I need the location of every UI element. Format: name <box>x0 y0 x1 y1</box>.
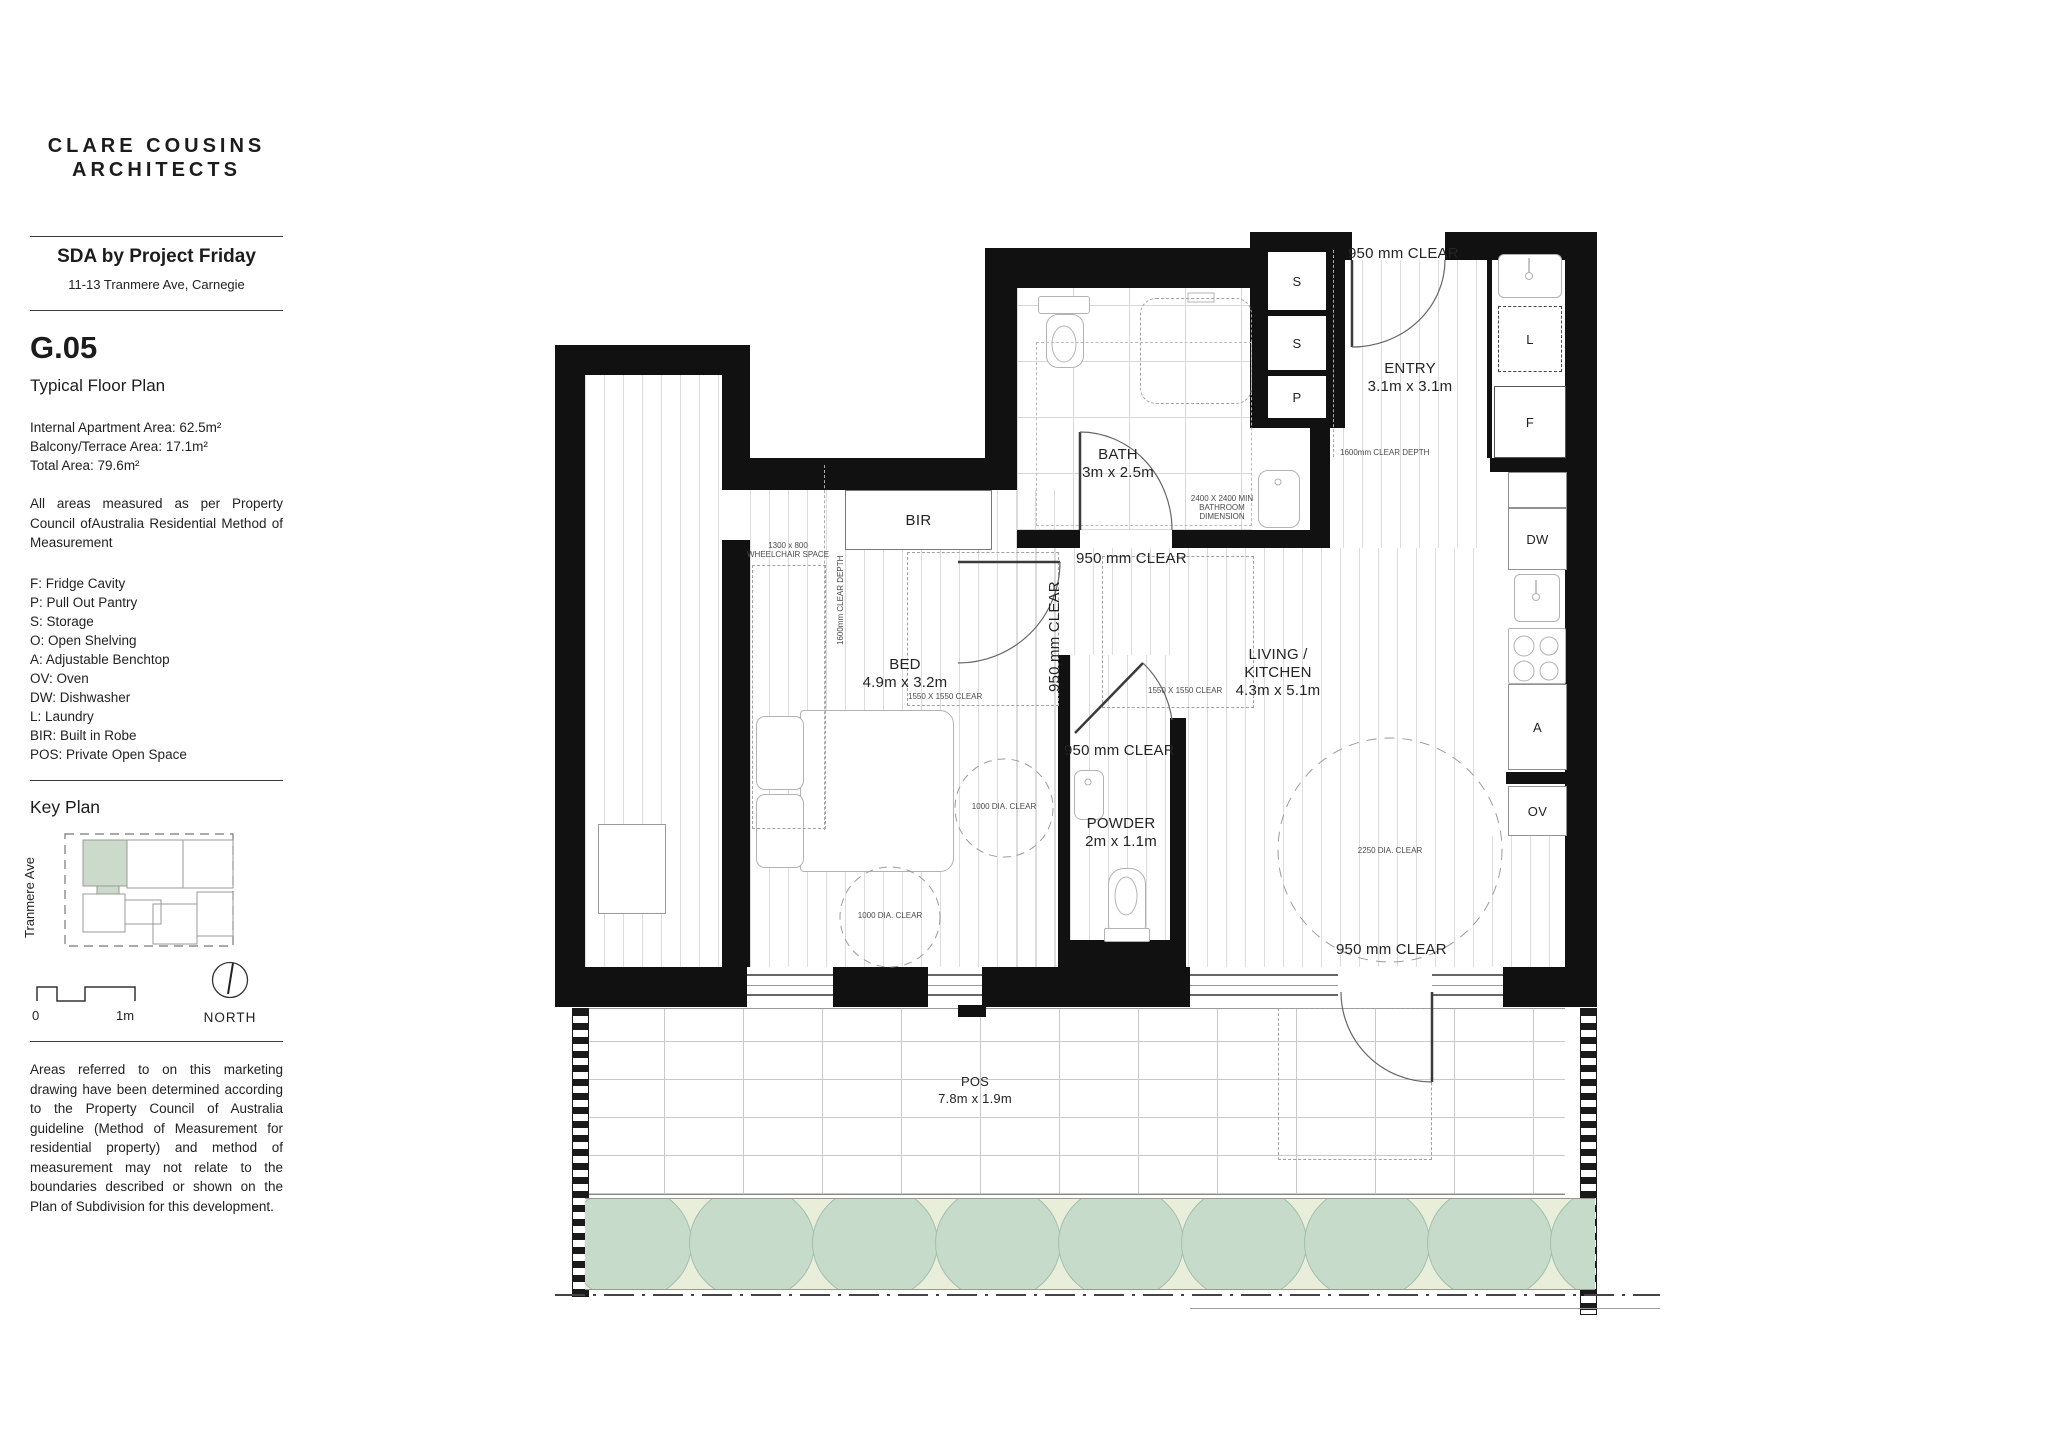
clearance-circle-note: 2250 DIA. CLEAR <box>1358 846 1422 855</box>
shower-head <box>1188 293 1214 302</box>
toilet-bowl <box>1052 326 1076 362</box>
tree <box>689 1198 815 1290</box>
clearance-circle-note: 1000 DIA. CLEAR <box>972 802 1036 811</box>
clearance-square-note: 1550 X 1550 CLEAR <box>908 692 982 701</box>
wheelchair-note-line1: 1300 x 800 <box>768 541 808 550</box>
clear-depth-note: 1600mm CLEAR DEPTH <box>1340 448 1429 457</box>
tree <box>1181 1198 1307 1290</box>
clearance-square-note: 1550 X 1550 CLEAR <box>1148 686 1222 695</box>
living-label-line1: LIVING / <box>1248 646 1307 663</box>
toilet-bowl <box>1115 877 1137 915</box>
pos-label: POS <box>961 1074 989 1089</box>
clearance-hall-side: 950 mm CLEAR <box>1046 570 1078 692</box>
clearance-hall-top: 950 mm CLEAR <box>1076 550 1187 567</box>
bath-min-note-line3: DIMENSION <box>1199 512 1244 521</box>
tap <box>1533 594 1540 601</box>
wheelchair-note-line2: WHEELCHAIR SPACE <box>747 550 829 559</box>
entry-label: ENTRY <box>1384 360 1436 377</box>
tree <box>935 1198 1061 1290</box>
cooktop-burner <box>1540 662 1558 680</box>
tap <box>1275 479 1281 485</box>
tap <box>1085 779 1091 785</box>
bath-dims: 3m x 2.5m <box>1082 464 1154 481</box>
clearance-powder: 950 mm CLEAR <box>1064 742 1175 759</box>
tree <box>1058 1198 1184 1290</box>
clearance-pos: 950 mm CLEAR <box>1336 941 1447 958</box>
bed-dims: 4.9m x 3.2m <box>863 674 948 691</box>
cooktop-burner <box>1514 661 1534 681</box>
door-swing-arc <box>958 562 1060 663</box>
bed-label: BED <box>889 656 920 673</box>
boundary-line <box>1190 1308 1660 1309</box>
bath-label: BATH <box>1098 446 1138 463</box>
cooktop-burner <box>1514 636 1534 656</box>
tree <box>1304 1198 1430 1290</box>
site-boundary-line <box>555 1294 1660 1296</box>
living-label-line2: KITCHEN <box>1244 664 1311 681</box>
powder-door <box>1075 663 1143 733</box>
garden-bed <box>585 1198 1595 1290</box>
clear-depth-note: 1600mm CLEAR DEPTH <box>836 545 850 645</box>
bath-min-note-line2: BATHROOM <box>1199 503 1245 512</box>
tree <box>1550 1198 1595 1290</box>
pos-dims: 7.8m x 1.9m <box>938 1091 1012 1106</box>
door-swing-arc <box>1341 992 1432 1082</box>
living-dims: 4.3m x 5.1m <box>1236 682 1321 699</box>
bath-min-note-line1: 2400 X 2400 MIN <box>1191 494 1253 503</box>
powder-label: POWDER <box>1087 815 1156 832</box>
powder-dims: 2m x 1.1m <box>1085 833 1157 850</box>
tree <box>1427 1198 1553 1290</box>
tree <box>812 1198 938 1290</box>
tap <box>1526 273 1533 280</box>
cooktop-burner <box>1540 637 1558 655</box>
floor-plan-sheet: CLARE COUSINS ARCHITECTS SDA by Project … <box>0 0 2048 1448</box>
clearance-circle-note: 1000 DIA. CLEAR <box>858 911 922 920</box>
door-swing-arc <box>1352 260 1445 347</box>
entry-dims: 3.1m x 3.1m <box>1368 378 1453 395</box>
tree <box>585 1198 692 1290</box>
clearance-entry: 950 mm CLEAR <box>1348 245 1459 262</box>
